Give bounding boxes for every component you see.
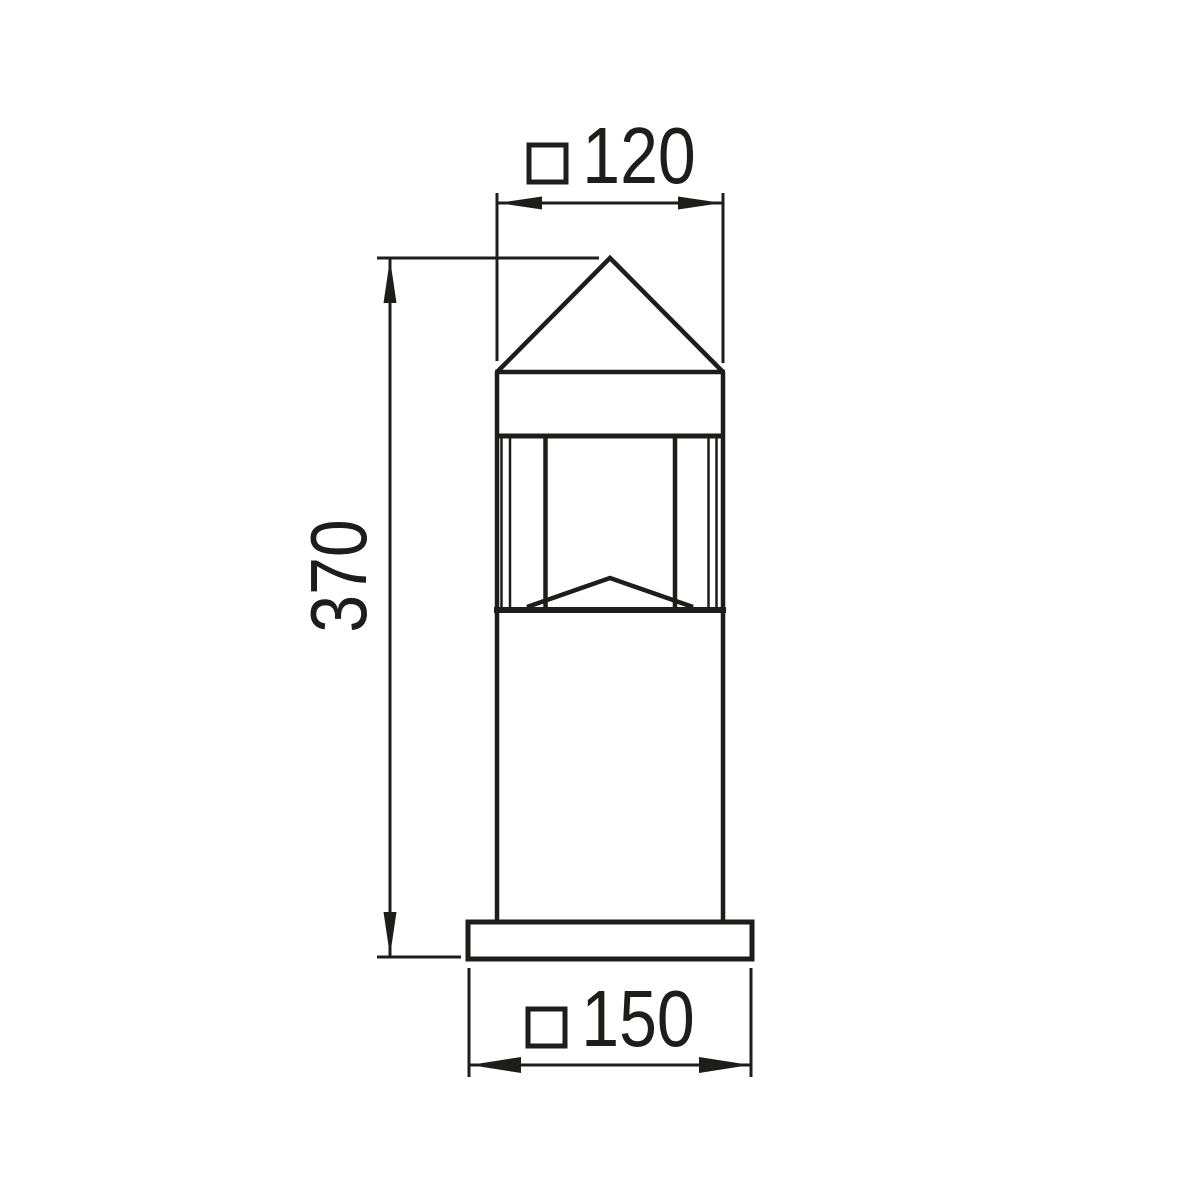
dimension-label-head-width: 120 (582, 111, 695, 200)
bollard-dimension-drawing: 120 370 150 (0, 0, 1200, 1200)
technical-drawing-canvas: 120 370 150 (0, 0, 1200, 1200)
dimension-label-height: 370 (294, 519, 383, 632)
square-section-symbol (529, 145, 566, 182)
dimension-base-width: 150 (469, 968, 751, 1077)
base-plate (468, 922, 752, 959)
arrowhead-left-icon (470, 1057, 521, 1073)
bollard-outline (468, 258, 752, 959)
arrowhead-right-icon (699, 1057, 750, 1073)
arrowhead-left-icon (498, 197, 542, 210)
square-section-symbol (528, 1009, 565, 1046)
dimension-head-width: 120 (497, 111, 723, 363)
roof-pyramid (497, 258, 723, 372)
arrowhead-down-icon (384, 912, 397, 956)
dimension-label-base-width: 150 (581, 974, 694, 1063)
arrowhead-up-icon (384, 259, 397, 303)
reflector-cone (527, 578, 693, 607)
